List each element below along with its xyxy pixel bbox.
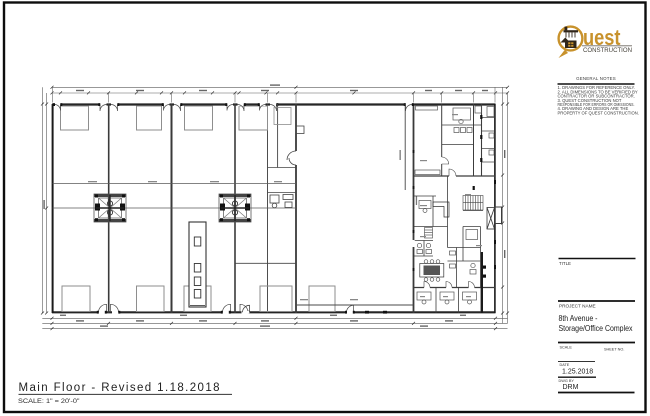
svg-text:Main Floor - Revised 1.18.2018: Main Floor - Revised 1.18.2018 (19, 382, 221, 394)
svg-text:DRM: DRM (563, 384, 579, 391)
svg-text:TITLE: TITLE (559, 261, 571, 266)
svg-text:PROJECT NAME: PROJECT NAME (559, 304, 596, 309)
svg-text:DATE: DATE (560, 363, 570, 367)
svg-text:1.25.2018: 1.25.2018 (562, 369, 593, 376)
svg-text:DWG BY: DWG BY (559, 379, 575, 383)
svg-text:CONSTRUCTION: CONSTRUCTION (583, 47, 632, 54)
svg-text:SHEET NO.: SHEET NO. (604, 348, 624, 352)
svg-text:SCALE: SCALE (560, 346, 573, 350)
svg-text:GENERAL NOTES: GENERAL NOTES (576, 76, 616, 81)
svg-text:SCALE: 1" = 20'-0": SCALE: 1" = 20'-0" (18, 398, 80, 405)
svg-text:8th Avenue -: 8th Avenue - (559, 314, 598, 323)
svg-text:Storage/Office Complex: Storage/Office Complex (559, 324, 633, 333)
svg-text:PROPERTY OF QUEST CONSTRUCTION: PROPERTY OF QUEST CONSTRUCTION. (558, 110, 639, 115)
